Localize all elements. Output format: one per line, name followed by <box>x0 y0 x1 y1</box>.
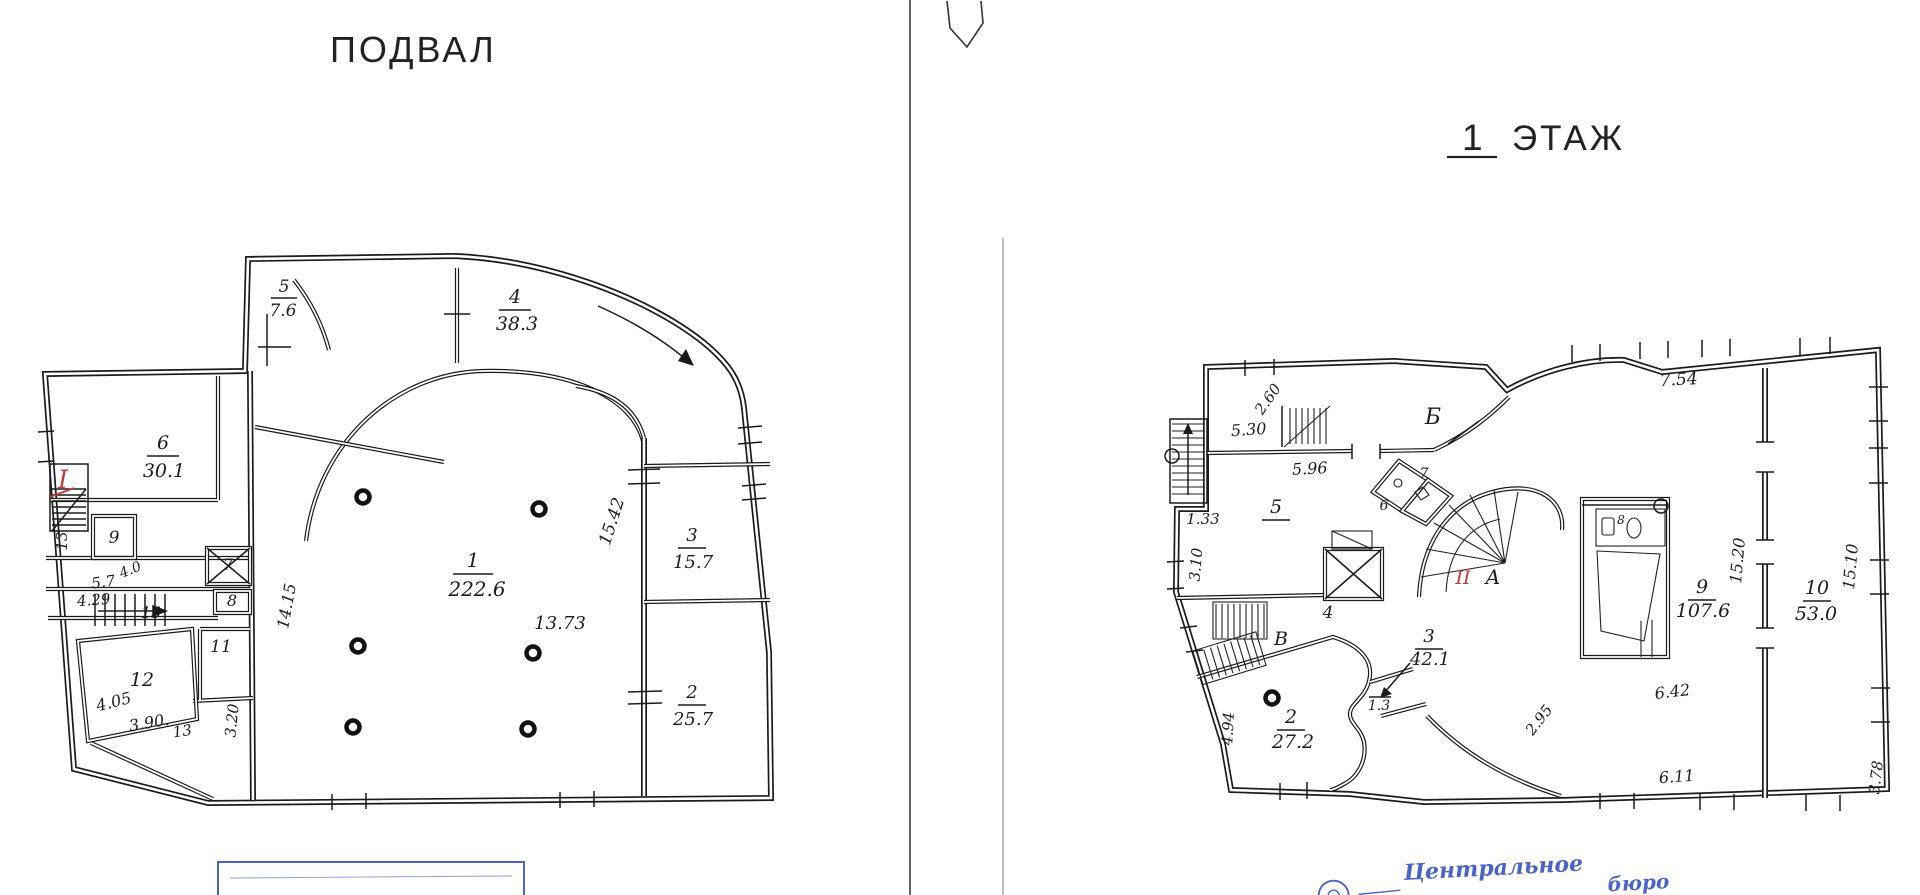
room-8-number: 8 <box>227 591 237 610</box>
f1-room-3-number: 3 <box>1423 626 1434 647</box>
room-1-number: 1 <box>467 548 480 572</box>
f1-room-9-area: 107.6 <box>1676 600 1730 622</box>
page-fold-divider <box>910 0 1003 895</box>
f1-room-2-number: 2 <box>1284 706 1297 728</box>
elevator-cross-icon <box>1325 549 1382 599</box>
room-2-area: 25.7 <box>672 709 714 730</box>
column-markers <box>347 491 546 736</box>
page-corner-flag-icon <box>947 1 983 47</box>
f1-room-8-number: 8 <box>1617 513 1625 527</box>
room-2-number: 2 <box>685 682 697 703</box>
dim-3-90: 3.90. <box>127 710 170 736</box>
dim-5-30: 5.30 <box>1230 419 1267 440</box>
f1-room-3-area: 42.1 <box>1409 649 1450 670</box>
dim-6-11: 6.11 <box>1658 766 1695 787</box>
axis-letter-a: А <box>1483 565 1500 589</box>
f1-room-10-area: 53.0 <box>1795 603 1837 625</box>
room-6-number: 6 <box>157 432 169 454</box>
room-3-number: 3 <box>686 525 697 546</box>
room-15-number: 15 <box>141 603 161 622</box>
floor1-premise-mark: II <box>1454 567 1471 589</box>
stamp-word-2: бюро <box>1607 869 1670 895</box>
floor1-external-stair <box>1165 419 1207 503</box>
room-12-number: 12 <box>130 669 154 691</box>
f1-room-9-number: 9 <box>1696 576 1708 598</box>
stamp-logo-icon <box>1318 880 1350 895</box>
floor1-title-word: ЭТАЖ <box>1512 119 1625 158</box>
dim-5-96: 5.96 <box>1291 458 1328 479</box>
dim-1-33: 1.33 <box>1186 510 1219 528</box>
floor1-service-block <box>1582 499 1668 657</box>
scanned-floorplan-sheet: ПОДВАЛ <box>0 0 1920 895</box>
room-13-number: 13 <box>53 531 71 550</box>
room-3-area: 15.7 <box>673 552 714 573</box>
dim-4-05: 4.05 <box>93 688 133 715</box>
dim-4-29: 4.29 <box>75 590 111 610</box>
room-5-area: 7.6 <box>269 301 296 321</box>
room-11-number: 11 <box>210 637 232 657</box>
dim-7-54: 7.54 <box>1659 369 1698 391</box>
room-1-area: 222.6 <box>447 577 506 601</box>
stamp-bureau: Центральное бюро <box>1317 846 1670 895</box>
basement-title: ПОДВАЛ <box>330 29 497 70</box>
f1-room-10-number: 10 <box>1805 577 1829 599</box>
axis-letter-v: В <box>1273 628 1288 650</box>
dim-2-95: 2.95 <box>1521 701 1556 739</box>
stair-up-arrow-icon <box>1183 423 1193 434</box>
dim-2-60: 2.60 <box>1250 380 1285 419</box>
sink-icon <box>1394 479 1402 487</box>
column-marker <box>1266 692 1279 705</box>
room-4-number: 4 <box>508 286 521 308</box>
floor1-title-number: 1 <box>1462 117 1486 158</box>
room3-leader-arrow <box>1380 663 1410 698</box>
f1-room-4-number: 4 <box>1322 603 1334 623</box>
corridor-direction-arrow-icon <box>598 306 694 366</box>
room-5-number: 5 <box>279 277 290 297</box>
room-6-area: 30.1 <box>143 460 185 482</box>
f1-room-7-number: 7 <box>1420 466 1429 482</box>
dim-3-20: 3.20 <box>221 702 242 738</box>
dim-15-20: 15.20 <box>1726 537 1749 584</box>
floor-plan-first: 1 ЭТАЖ <box>1165 117 1890 811</box>
floor1-axis-letters: Б В А II <box>1273 405 1501 650</box>
room-9-number: 9 <box>109 528 120 548</box>
dim-4-94: 4.94 <box>1218 712 1238 747</box>
room-4-area: 38.3 <box>496 313 538 335</box>
floor1-title: 1 ЭТАЖ <box>1447 117 1625 158</box>
dim-15-10: 15.10 <box>1839 543 1862 590</box>
toilet-icon <box>1602 518 1614 535</box>
floor1-entry-stair <box>1284 406 1330 447</box>
room-7-number: 7 <box>223 555 234 574</box>
dim-3-10: 3.10 <box>1186 547 1207 582</box>
dim-13: 13 <box>172 721 193 741</box>
stamp-box-left <box>218 862 524 895</box>
floor1-lower-stairs <box>1193 602 1267 685</box>
dim-15-42: 15.42 <box>595 495 629 547</box>
floor-plan-basement: ПОДВАЛ <box>38 29 771 810</box>
dim-13-73: 13.73 <box>534 613 586 634</box>
f1-room-6-number: 6 <box>1380 498 1389 514</box>
dim-4-0: 4.0 <box>116 559 144 583</box>
sink-icon <box>1627 518 1641 538</box>
f1-room-2-area: 27.2 <box>1271 731 1314 753</box>
dim-14-15: 14.15 <box>273 582 300 630</box>
axis-letter-b: Б <box>1424 405 1441 430</box>
dim-6-42: 6.42 <box>1653 680 1691 703</box>
f1-room-5-number: 5 <box>1270 496 1282 518</box>
floor1-elevator <box>1325 531 1382 599</box>
dim-1-3: 1.3 <box>1368 698 1390 714</box>
stamp-word-1: Центральное <box>1402 851 1584 886</box>
